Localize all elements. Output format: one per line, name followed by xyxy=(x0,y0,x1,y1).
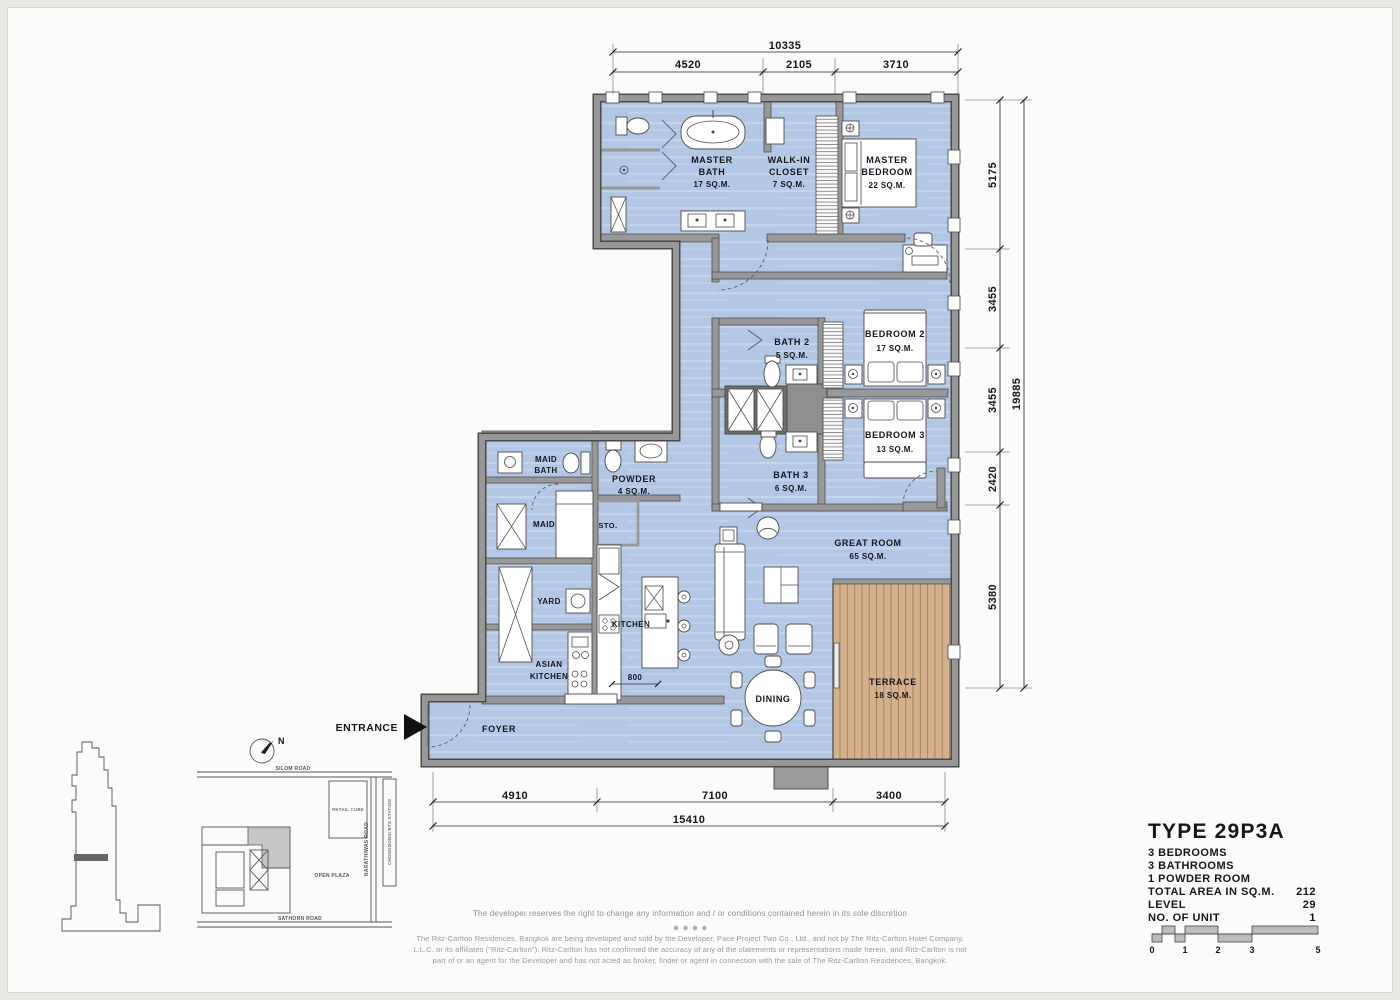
level-label: LEVEL xyxy=(1148,899,1186,911)
dim-bottom-2: 7100 xyxy=(702,790,728,802)
unit-type-title: TYPE 29P3A xyxy=(1148,820,1285,843)
site-building-footprint xyxy=(202,827,290,913)
room-label-foyer: FOYER xyxy=(482,724,516,734)
tower-level-highlight xyxy=(74,854,108,861)
svg-text:KITCHEN: KITCHEN xyxy=(530,672,568,681)
dim-right-3: 3455 xyxy=(987,387,999,413)
unit-count-value: 1 xyxy=(1309,912,1316,924)
total-area-value: 212 xyxy=(1296,886,1316,898)
dim-right-total: 19885 xyxy=(1011,378,1023,411)
compass-n-label: N xyxy=(278,736,285,746)
svg-text:0: 0 xyxy=(1149,945,1154,955)
room-label-bedroom2: BEDROOM 2 xyxy=(865,329,925,339)
svg-text:BEDROOM: BEDROOM xyxy=(861,167,912,177)
room-label-terrace: TERRACE xyxy=(869,677,917,687)
road-label-narathiwas: NARATHIWAS ROAD xyxy=(364,822,370,876)
scale-bar: 0 1 2 3 5 xyxy=(1149,926,1320,955)
dim-top-total: 10335 xyxy=(769,40,802,52)
room-label-kitchen: KITCHEN xyxy=(612,620,650,629)
svg-text:13 SQ.M.: 13 SQ.M. xyxy=(877,445,914,454)
legal-text: The developer reserves the right to chan… xyxy=(413,909,967,965)
svg-text:17 SQ.M.: 17 SQ.M. xyxy=(694,180,731,189)
dim-top-1: 4520 xyxy=(675,59,701,71)
svg-text:5 SQ.M.: 5 SQ.M. xyxy=(776,351,808,360)
feature-powder: 1 POWDER ROOM xyxy=(1148,873,1250,885)
room-label-powder: POWDER xyxy=(612,474,656,484)
road-label-silom: SILOM ROAD xyxy=(276,766,311,772)
disclaimer-line3: part of or an agent for the Developer an… xyxy=(433,956,948,965)
room-label-great-room: GREAT ROOM xyxy=(834,538,901,548)
svg-text:1: 1 xyxy=(1182,945,1187,955)
info-block: TYPE 29P3A 3 BEDROOMS 3 BATHROOMS 1 POWD… xyxy=(1148,820,1321,955)
svg-text:BATH: BATH xyxy=(534,466,557,475)
disclaimer-line2: L.L.C. or its affiliates ("Ritz-Carlton"… xyxy=(413,945,967,954)
entrance-label: ENTRANCE xyxy=(336,722,398,734)
room-label-yard: YARD xyxy=(537,597,561,606)
room-label-bath2: BATH 2 xyxy=(774,337,809,347)
feature-bedrooms: 3 BEDROOMS xyxy=(1148,847,1227,859)
svg-text:5: 5 xyxy=(1315,945,1320,955)
dim-bottom-total: 15410 xyxy=(673,814,706,826)
room-label-dining: DINING xyxy=(755,694,790,704)
entrance-marker: ENTRANCE xyxy=(336,714,427,740)
svg-text:3: 3 xyxy=(1249,945,1254,955)
dim-right-5: 5380 xyxy=(987,584,999,610)
disclaimer-line1: The Ritz-Carlton Residences, Bangkok are… xyxy=(416,934,963,943)
room-label-bedroom3: BEDROOM 3 xyxy=(865,430,925,440)
svg-text:6 SQ.M.: 6 SQ.M. xyxy=(775,484,807,493)
svg-text:CLOSET: CLOSET xyxy=(769,167,809,177)
svg-text:4 SQ.M.: 4 SQ.M. xyxy=(618,487,650,496)
room-label-bath3: BATH 3 xyxy=(773,470,808,480)
feature-bathrooms: 3 BATHROOMS xyxy=(1148,860,1234,872)
room-label-sto: STO. xyxy=(599,521,618,530)
bts-station-label: CHONGNONSI BTS STATION xyxy=(387,799,392,865)
room-label-maid: MAID xyxy=(533,520,555,529)
tower-elevation xyxy=(62,742,160,931)
dim-right-4: 2420 xyxy=(987,466,999,492)
total-area-label: TOTAL AREA IN SQ.M. xyxy=(1148,886,1275,898)
unit-count-label: NO. OF UNIT xyxy=(1148,912,1220,924)
lift-shaft xyxy=(725,384,827,434)
floorplan-svg: 10335 4520 2105 3710 5175 3455 3455 2420… xyxy=(0,0,1400,1000)
room-label-master-bath: MASTER xyxy=(691,155,733,165)
dim-right-2: 3455 xyxy=(987,286,999,312)
separator-dots-icon xyxy=(674,926,707,930)
dim-bottom-3: 3400 xyxy=(876,790,902,802)
dim-top-3: 3710 xyxy=(883,59,909,71)
svg-text:2: 2 xyxy=(1215,945,1220,955)
room-label-asian-kitchen: ASIAN xyxy=(536,660,563,669)
svg-text:22 SQ.M.: 22 SQ.M. xyxy=(869,181,906,190)
svg-text:65 SQ.M.: 65 SQ.M. xyxy=(850,552,887,561)
svg-text:17 SQ.M.: 17 SQ.M. xyxy=(877,344,914,353)
retail-cube-label: RETAIL CUBE xyxy=(332,807,364,812)
open-plaza-label: OPEN PLAZA xyxy=(314,873,349,879)
level-value: 29 xyxy=(1303,899,1316,911)
terrace-deck xyxy=(833,583,953,763)
dim-bottom-1: 4910 xyxy=(502,790,528,802)
site-map: N SILOM ROAD SATHORN ROAD NARATHIWAS ROA… xyxy=(197,736,396,927)
svg-text:7 SQ.M.: 7 SQ.M. xyxy=(773,180,805,189)
road-label-sathorn: SATHORN ROAD xyxy=(278,916,322,922)
svg-text:18 SQ.M.: 18 SQ.M. xyxy=(875,691,912,700)
asian-kitchen-counter xyxy=(568,632,592,698)
svg-text:BATH: BATH xyxy=(699,167,726,177)
developer-notice: The developer reserves the right to chan… xyxy=(473,909,907,918)
room-label-maid-bath: MAID xyxy=(535,455,557,464)
dim-top-2: 2105 xyxy=(786,59,812,71)
dim-right-1: 5175 xyxy=(987,162,999,188)
room-label-walk-in-closet: WALK-IN xyxy=(768,155,811,165)
dim-kitchen-island: 800 xyxy=(628,673,643,682)
room-label-master-bedroom: MASTER xyxy=(866,155,908,165)
compass: N xyxy=(250,736,285,763)
